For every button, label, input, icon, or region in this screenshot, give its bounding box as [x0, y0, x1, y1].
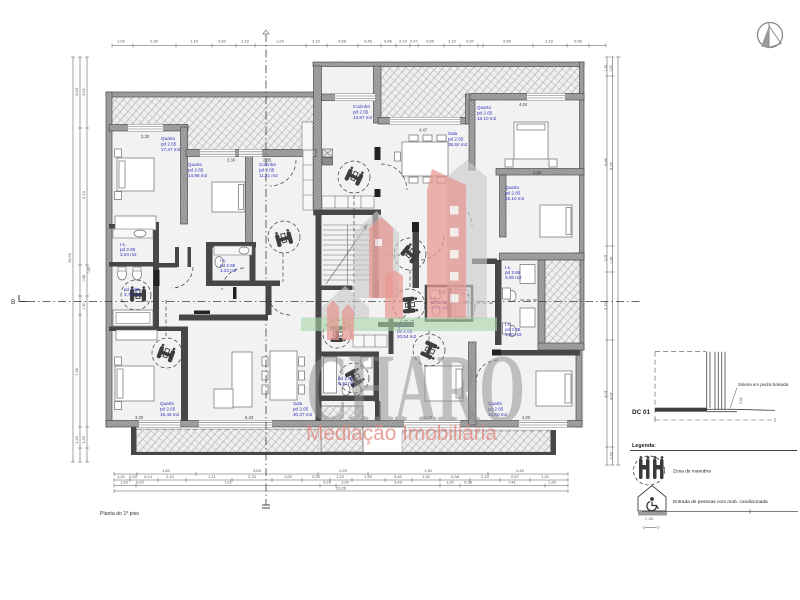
- svg-text:Zona de manobra: Zona de manobra: [673, 469, 711, 475]
- svg-text:1,35: 1,35: [81, 435, 86, 444]
- svg-text:2,10: 2,10: [241, 39, 250, 44]
- svg-text:1,20: 1,20: [609, 451, 614, 460]
- svg-text:1 .05: 1 .05: [645, 517, 653, 521]
- svg-text:2,30: 2,30: [150, 39, 159, 44]
- svg-text:2,25: 2,25: [339, 468, 348, 473]
- svg-text:0,82: 0,82: [218, 39, 227, 44]
- svg-text:1,30: 1,30: [422, 474, 431, 479]
- svg-text:0,96: 0,96: [574, 39, 583, 44]
- svg-text:1,30: 1,30: [424, 468, 433, 473]
- svg-text:0,98: 0,98: [82, 275, 86, 282]
- svg-text:Legenda:: Legenda:: [632, 443, 656, 449]
- svg-text:Soleira em pedra boleada: Soleira em pedra boleada: [738, 382, 789, 387]
- svg-text:0,26: 0,26: [610, 257, 614, 264]
- svg-text:2,10: 2,10: [481, 474, 490, 479]
- svg-text:2,10: 2,10: [166, 474, 175, 479]
- svg-text:0,38: 0,38: [451, 474, 460, 479]
- svg-text:1,80: 1,80: [162, 468, 171, 473]
- svg-text:4,04: 4,04: [519, 102, 528, 107]
- svg-text:6,33: 6,33: [245, 415, 254, 420]
- svg-text:2,10: 2,10: [312, 39, 321, 44]
- svg-text:3,30: 3,30: [227, 158, 236, 163]
- svg-text:3,58: 3,58: [533, 170, 542, 175]
- svg-text:0,46: 0,46: [364, 39, 373, 44]
- svg-text:1,20: 1,20: [336, 474, 345, 479]
- svg-text:4,07: 4,07: [609, 391, 614, 400]
- svg-text:7,01: 7,01: [224, 480, 233, 485]
- svg-text:8,26: 8,26: [609, 161, 614, 170]
- svg-text:0,20: 0,20: [609, 65, 613, 72]
- svg-text:3,30: 3,30: [135, 415, 144, 420]
- svg-text:0,14: 0,14: [144, 474, 153, 479]
- svg-text:1,20: 1,20: [541, 474, 550, 479]
- svg-text:1,20: 1,20: [120, 480, 129, 485]
- svg-text:0,38: 0,38: [464, 480, 473, 485]
- svg-text:7,38: 7,38: [74, 367, 79, 376]
- svg-text:0,40: 0,40: [394, 474, 403, 479]
- svg-text:1,20: 1,20: [341, 480, 350, 485]
- svg-text:0,25: 0,25: [312, 474, 321, 479]
- svg-text:6,86: 6,86: [603, 157, 608, 166]
- svg-text:2,33: 2,33: [248, 474, 257, 479]
- svg-text:3,30: 3,30: [141, 134, 150, 139]
- svg-text:1,11: 1,11: [208, 474, 216, 479]
- svg-text:3,02: 3,02: [81, 87, 86, 96]
- svg-text:Planta do 1º piso: Planta do 1º piso: [100, 511, 139, 517]
- svg-text:7,41: 7,41: [508, 480, 517, 485]
- svg-text:B: B: [11, 299, 15, 306]
- svg-text:0,97: 0,97: [466, 39, 475, 44]
- svg-text:1,00: 1,00: [284, 474, 293, 479]
- svg-text:1,20: 1,20: [117, 474, 126, 479]
- svg-text:3,00: 3,00: [74, 87, 79, 96]
- svg-text:Mediação Imobiliária: Mediação Imobiliária: [306, 422, 497, 445]
- svg-text:0,57: 0,57: [511, 474, 520, 479]
- svg-text:1,40: 1,40: [516, 468, 525, 473]
- svg-text:0,42: 0,42: [87, 267, 91, 274]
- svg-text:3,05: 3,05: [604, 255, 608, 262]
- svg-text:Entrada de pessoas com mob. co: Entrada de pessoas com mob. condicionada: [673, 499, 768, 505]
- svg-text:0,56: 0,56: [426, 39, 435, 44]
- svg-text:4,01: 4,01: [603, 389, 608, 398]
- svg-text:0,20: 0,20: [136, 480, 145, 485]
- svg-text:1,20: 1,20: [446, 480, 455, 485]
- svg-text:4,47: 4,47: [419, 128, 428, 133]
- svg-text:0,23: 0,23: [323, 480, 332, 485]
- svg-text:1,20: 1,20: [548, 480, 557, 485]
- svg-text:1,30: 1,30: [364, 474, 373, 479]
- svg-text:2,43: 2,43: [394, 480, 403, 485]
- svg-text:19,65: 19,65: [67, 252, 72, 263]
- svg-text:1,90: 1,90: [82, 303, 86, 310]
- svg-text:pd 2.653,75 m2: pd 2.653,75 m2: [124, 287, 141, 297]
- svg-text:2,10: 2,10: [448, 39, 457, 44]
- svg-text:0,46: 0,46: [384, 39, 393, 44]
- svg-text:0,47: 0,47: [410, 39, 419, 44]
- svg-text:2,66: 2,66: [503, 39, 512, 44]
- svg-text:1,36: 1,36: [604, 65, 608, 72]
- svg-text:DC 01: DC 01: [632, 409, 651, 416]
- svg-text:2,10: 2,10: [399, 39, 408, 44]
- svg-text:1,02: 1,02: [117, 39, 126, 44]
- svg-text:0,68: 0,68: [338, 39, 347, 44]
- svg-text:1,24: 1,24: [276, 39, 285, 44]
- svg-text:3,70: 3,70: [603, 301, 608, 310]
- svg-text:6,13: 6,13: [81, 190, 86, 199]
- svg-text:23,26: 23,26: [336, 486, 347, 491]
- svg-text:0,20: 0,20: [129, 474, 138, 479]
- svg-text:1,20: 1,20: [74, 435, 79, 444]
- svg-text:2,10: 2,10: [545, 39, 554, 44]
- svg-text:0,02: 0,02: [739, 397, 743, 404]
- svg-text:1,15: 1,15: [190, 39, 199, 44]
- svg-text:3,83: 3,83: [253, 468, 262, 473]
